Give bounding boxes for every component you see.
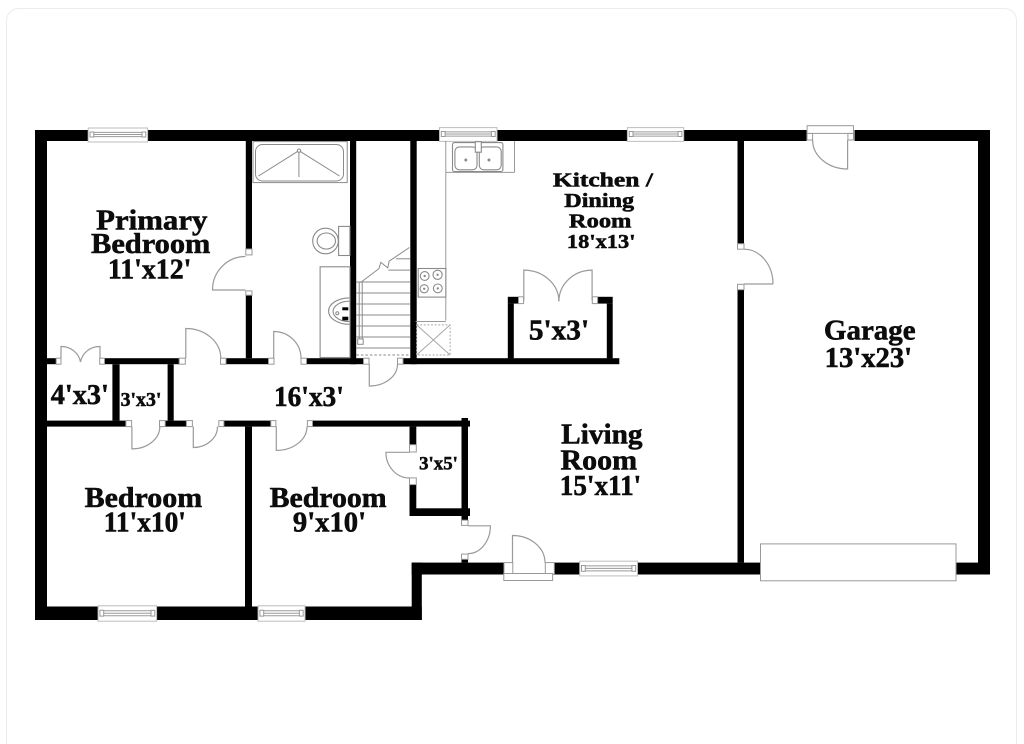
svg-text:9'x10': 9'x10' xyxy=(293,508,366,539)
svg-text:Dining: Dining xyxy=(564,190,635,212)
svg-text:3'x3': 3'x3' xyxy=(121,389,162,411)
svg-text:Room: Room xyxy=(569,211,632,233)
svg-text:15'x11': 15'x11' xyxy=(560,471,641,502)
svg-text:11'x12': 11'x12' xyxy=(108,254,192,285)
svg-text:4'x3': 4'x3' xyxy=(51,380,109,411)
svg-text:3'x5': 3'x5' xyxy=(419,454,458,475)
svg-text:5'x3': 5'x3' xyxy=(529,316,589,347)
svg-text:18'x13': 18'x13' xyxy=(567,231,636,253)
svg-text:Kitchen /: Kitchen / xyxy=(553,170,653,192)
svg-text:16'x3': 16'x3' xyxy=(274,382,344,413)
svg-text:11'x10': 11'x10' xyxy=(104,507,186,538)
svg-text:13'x23': 13'x23' xyxy=(825,343,913,374)
